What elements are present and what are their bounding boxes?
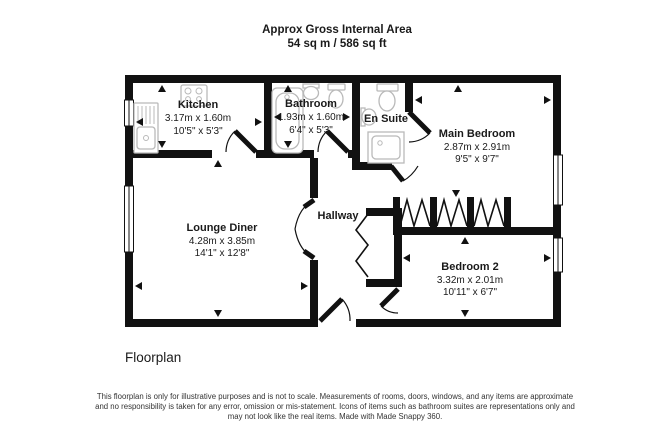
lounge-dims-metric: 4.28m x 3.85m — [189, 236, 255, 247]
wall-outer-bottom-right — [356, 319, 561, 327]
arrow-down-icon — [452, 190, 460, 197]
ensuite-label-group: En Suite — [364, 113, 408, 125]
wall-outer-top — [125, 75, 561, 83]
ensuite-toilet-icon — [377, 84, 398, 111]
ensuite-label: En Suite — [364, 113, 408, 125]
bathroom-dims-imperial: 6'4" x 5'3" — [289, 125, 333, 136]
arrow-up-icon — [454, 85, 462, 92]
main-bedroom-dims-imperial: 9'5" x 9'7" — [455, 154, 499, 165]
arrow-up-icon — [461, 237, 469, 244]
kitchen-label: Kitchen — [178, 99, 219, 111]
bedroom2-dims-imperial: 10'11" x 6'7" — [443, 287, 498, 298]
main-bedroom-window — [554, 155, 563, 205]
arrow-right-icon — [301, 282, 308, 290]
header-title-line2: 54 sq m / 586 sq ft — [287, 38, 386, 50]
wall-outer-bottom-left — [125, 319, 318, 327]
arrow-up-icon — [158, 85, 166, 92]
kitchen-dims-imperial: 10'5" x 5'3" — [173, 126, 223, 137]
cupboard-bifold-doors — [356, 214, 368, 277]
wardrobe-bifold-bay2 — [437, 200, 467, 226]
wardrobe-bifold-bay1 — [400, 200, 430, 226]
ensuite-door — [409, 112, 430, 142]
cupboard-bottom-stub — [366, 279, 402, 287]
floorplan-page: Approx Gross Internal Area 54 sq m / 586… — [0, 0, 670, 438]
lounge-label: Lounge Diner — [187, 222, 259, 234]
wall-bathroom-ensuite-divider — [352, 83, 360, 162]
lounge-window — [125, 186, 134, 252]
wall-lounge-hall-bottom — [310, 260, 318, 319]
kitchen-dims-metric: 3.17m x 1.60m — [165, 113, 231, 124]
bedroom2-dims-metric: 3.32m x 2.01m — [437, 275, 503, 286]
main-bedroom-door — [391, 166, 418, 181]
disclaimer-line1: This floorplan is only for illustrative … — [97, 392, 573, 401]
shower-icon — [368, 132, 404, 163]
wall-bedrooms-divider — [393, 227, 561, 235]
bathroom-label: Bathroom — [285, 98, 337, 110]
main-bedroom-label: Main Bedroom — [439, 128, 516, 140]
wardrobe-post — [504, 197, 511, 228]
front-door — [320, 299, 350, 321]
arrow-up-icon — [214, 160, 222, 167]
disclaimer-line2: and no responsibility is taken for any e… — [95, 402, 575, 411]
floorplan-canvas: Approx Gross Internal Area 54 sq m / 586… — [0, 0, 670, 438]
wardrobe-bifold-bay3 — [474, 200, 504, 226]
floorplan-caption: Floorplan — [125, 350, 181, 365]
arrow-left-icon — [415, 96, 422, 104]
wardrobe-post — [430, 197, 437, 228]
arrow-right-icon — [544, 96, 551, 104]
lounge-dims-imperial: 14'1" x 12'8" — [195, 248, 250, 259]
hallway-label-group: Hallway — [318, 210, 360, 222]
kitchen-window — [125, 100, 134, 126]
disclaimer-line3: may not look like the real items. Made w… — [228, 412, 443, 421]
bedroom2-door — [381, 289, 398, 313]
bedroom2-label: Bedroom 2 — [441, 261, 498, 273]
cupboard-right-wall — [394, 208, 402, 279]
arrow-down-icon — [158, 141, 166, 148]
arrow-left-icon — [403, 254, 410, 262]
bedroom2-label-group: Bedroom 2 3.32m x 2.01m 10'11" x 6'7" — [437, 261, 503, 298]
main-bedroom-dims-metric: 2.87m x 2.91m — [444, 142, 510, 153]
lounge-label-group: Lounge Diner 4.28m x 3.85m 14'1" x 12'8" — [187, 222, 259, 259]
bathroom-dims-metric: 1.93m x 1.60m — [278, 112, 344, 123]
arrow-down-icon — [214, 310, 222, 317]
hallway-label: Hallway — [318, 210, 360, 222]
kitchen-label-group: Kitchen 3.17m x 1.60m 10'5" x 5'3" — [165, 99, 231, 137]
arrow-right-icon — [255, 118, 262, 126]
wall-lounge-hall-top — [310, 158, 318, 198]
arrow-right-icon — [544, 254, 551, 262]
bedroom2-window — [554, 238, 563, 272]
arrow-down-icon — [461, 310, 469, 317]
wall-ensuite-right — [405, 83, 413, 112]
main-bedroom-label-group: Main Bedroom 2.87m x 2.91m 9'5" x 9'7" — [439, 128, 516, 165]
kitchen-door — [226, 131, 256, 152]
lounge-double-door — [295, 200, 314, 258]
kitchen-sink-icon — [134, 103, 158, 153]
header-title-line1: Approx Gross Internal Area — [262, 24, 412, 36]
footer: Floorplan This floorplan is only for ill… — [95, 350, 575, 421]
wall-kitchen-bathroom-divider — [264, 83, 272, 150]
header: Approx Gross Internal Area 54 sq m / 586… — [262, 24, 412, 50]
wardrobe-post — [467, 197, 474, 228]
arrow-left-icon — [135, 282, 142, 290]
